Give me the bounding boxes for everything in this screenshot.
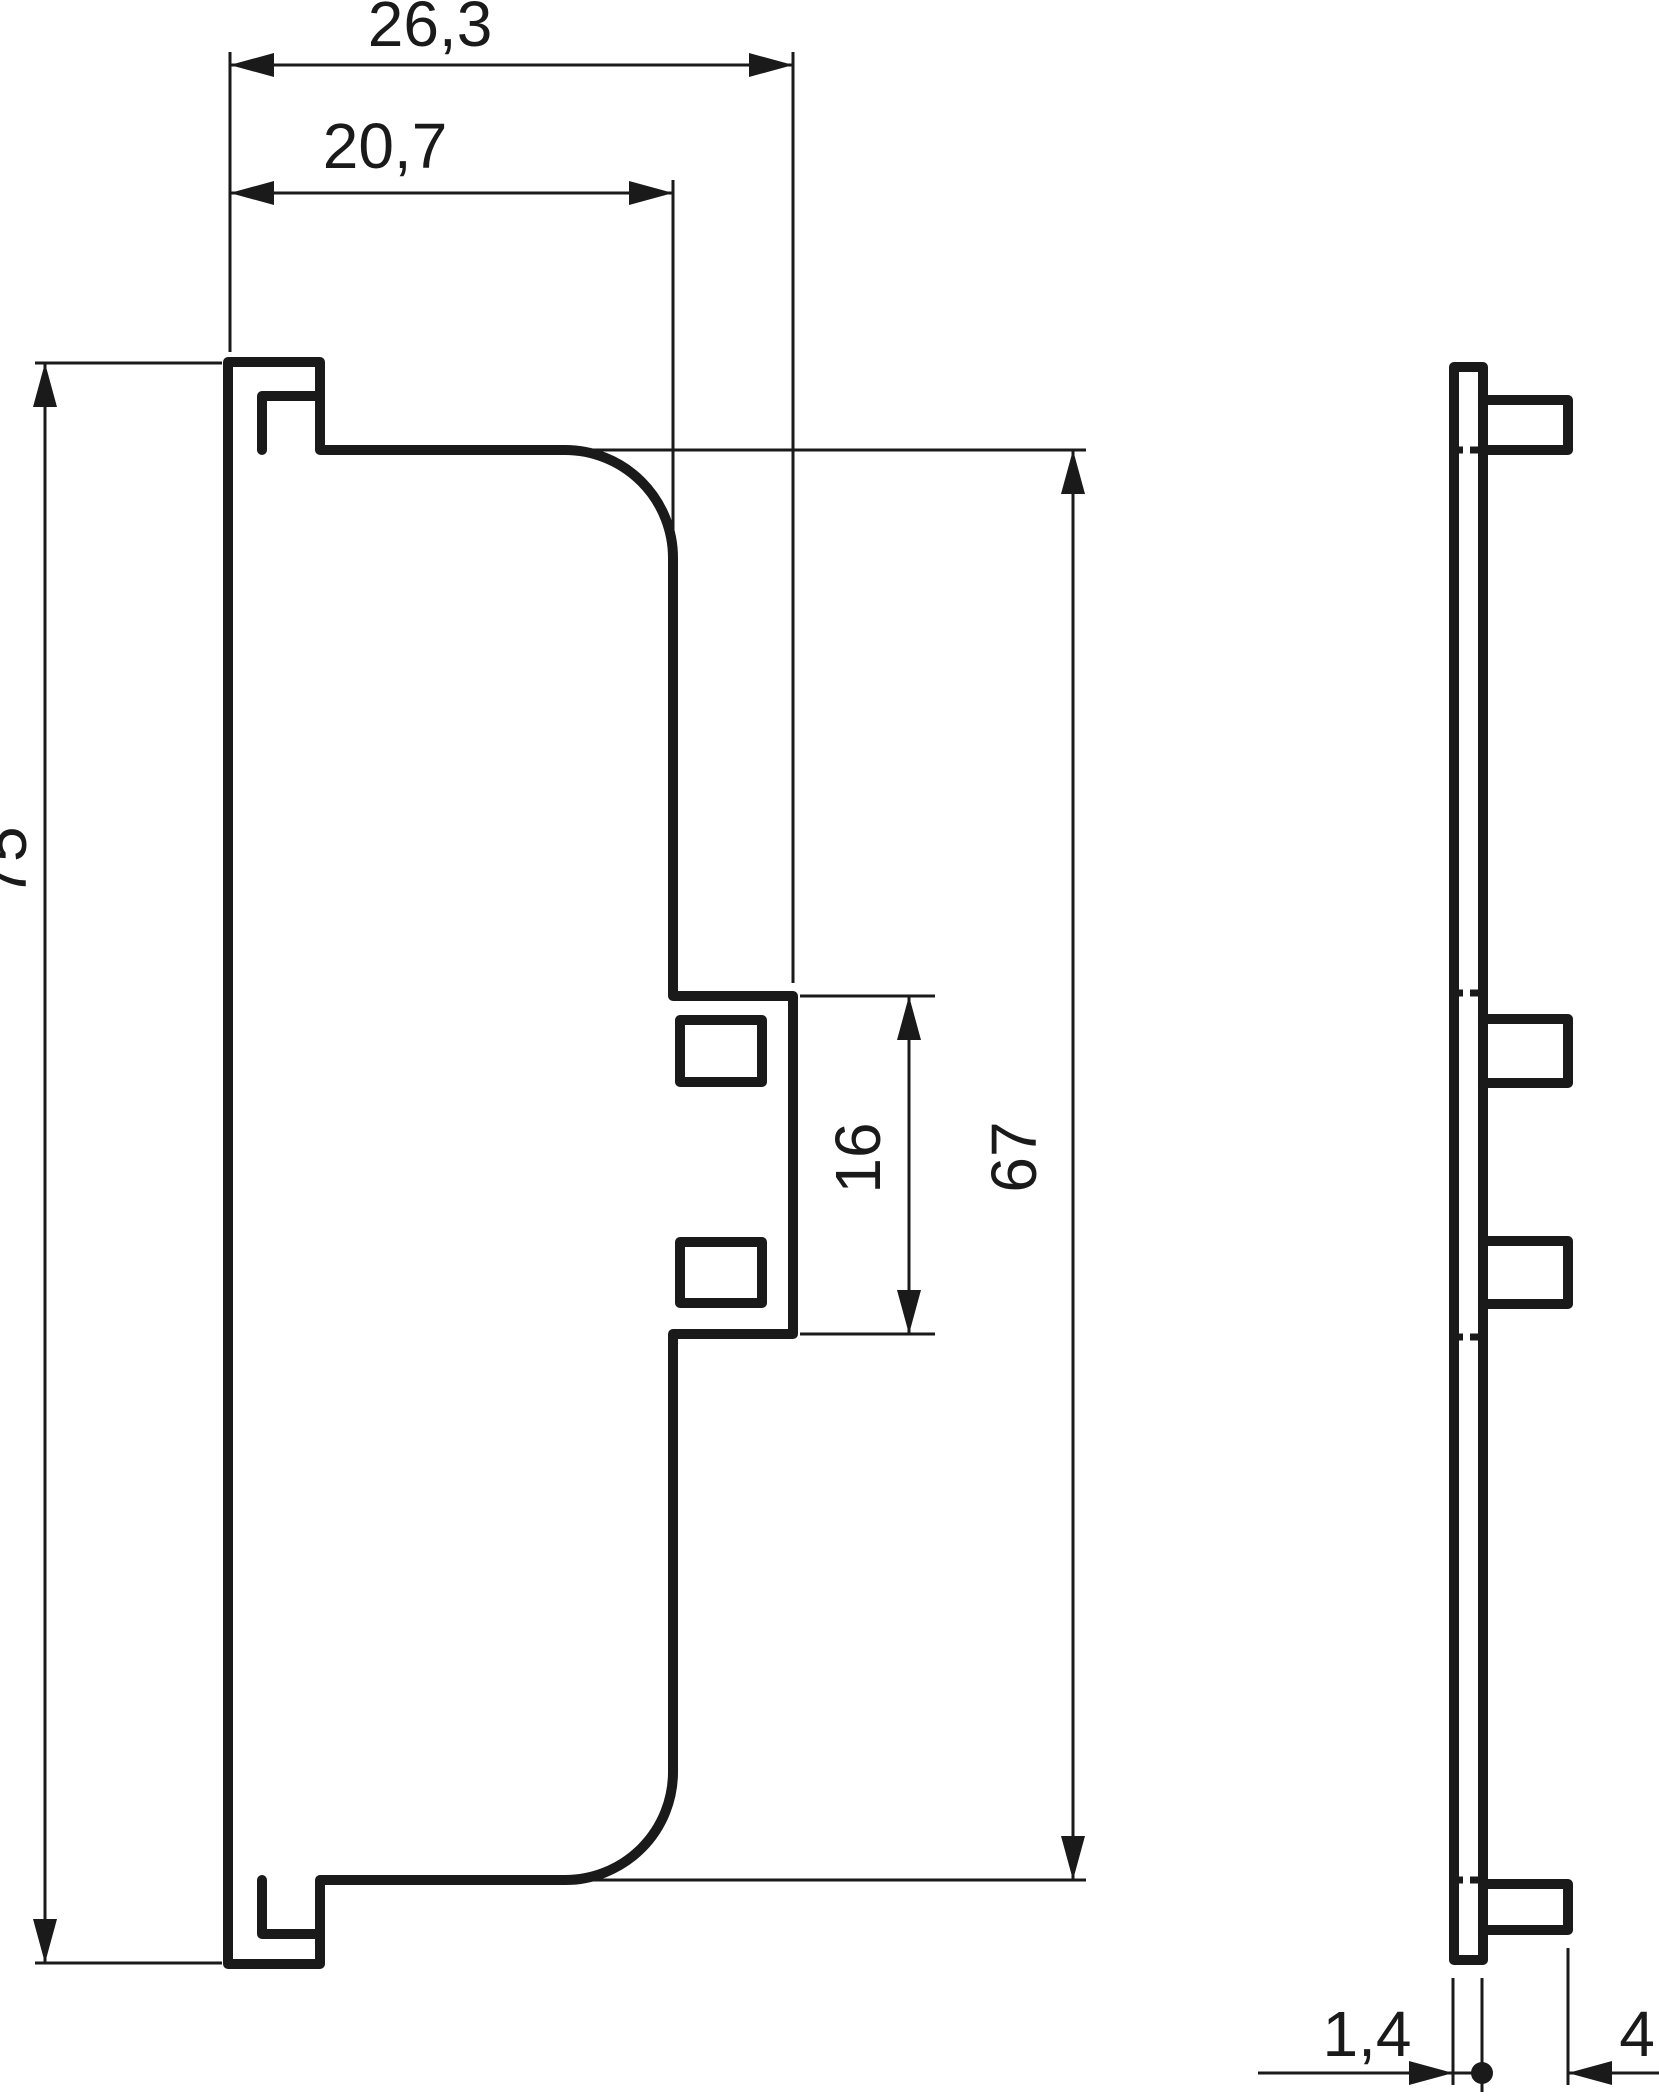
extension-lines-side	[1453, 1948, 1568, 2092]
dim-plate-thickness-arrow	[1409, 2061, 1453, 2085]
extension-lines-front	[35, 52, 1086, 1963]
dim-tab-depth: 4	[1568, 1998, 1659, 2085]
dim-overall-height-arrow-top	[33, 363, 57, 407]
front-view-bottom-hook-lines	[262, 1880, 320, 1934]
side-view-protrusion-top	[1483, 400, 1568, 450]
dim-plate-thickness-dot	[1471, 2062, 1493, 2084]
dim-notch-height-arrow-bottom	[897, 1290, 921, 1334]
side-view-protrusion-mid-upper	[1483, 1019, 1568, 1083]
dim-inner-width-arrow-left	[230, 181, 274, 205]
dim-inner-width-arrow-right	[629, 181, 673, 205]
overall-width-label: 26,3	[368, 0, 493, 60]
dim-body-height-arrow-top	[1061, 450, 1085, 494]
dim-body-height-arrow-bottom	[1061, 1836, 1085, 1880]
inner-width-label: 20,7	[323, 110, 448, 182]
dim-overall-height-arrow-bottom	[33, 1919, 57, 1963]
front-view-outline	[228, 362, 793, 1964]
notch-height-label: 16	[822, 1122, 894, 1193]
dim-overall-height: 75	[0, 363, 57, 1963]
dim-notch-height-arrow-top	[897, 996, 921, 1040]
side-view-protrusion-bottom	[1483, 1884, 1568, 1930]
front-view	[228, 362, 793, 1964]
dim-inner-width: 20,7	[230, 110, 673, 205]
drawing-canvas: 26,3 20,7 75 16 67	[0, 0, 1659, 2096]
dim-overall-width-arrow-left	[230, 53, 274, 77]
dim-tab-depth-arrow	[1568, 2061, 1612, 2085]
side-view-protrusion-mid-lower	[1483, 1241, 1568, 1304]
side-view-plate	[1454, 367, 1483, 1960]
front-view-clip-square-lower	[680, 1242, 762, 1303]
tab-depth-label: 4	[1619, 1998, 1655, 2070]
technical-drawing: 26,3 20,7 75 16 67	[0, 0, 1659, 2096]
plate-thickness-label: 1,4	[1323, 1998, 1412, 2070]
side-view	[1451, 367, 1568, 1960]
dim-plate-thickness: 1,4	[1258, 1998, 1493, 2085]
front-view-clip-square-upper	[680, 1020, 762, 1082]
body-height-label: 67	[978, 1121, 1050, 1192]
dim-notch-height: 16	[822, 996, 921, 1334]
front-view-top-hook-lines	[262, 396, 320, 450]
dim-body-height: 67	[978, 450, 1085, 1880]
overall-height-label: 75	[0, 826, 40, 897]
dim-overall-width: 26,3	[230, 0, 793, 77]
dim-overall-width-arrow-right	[749, 53, 793, 77]
